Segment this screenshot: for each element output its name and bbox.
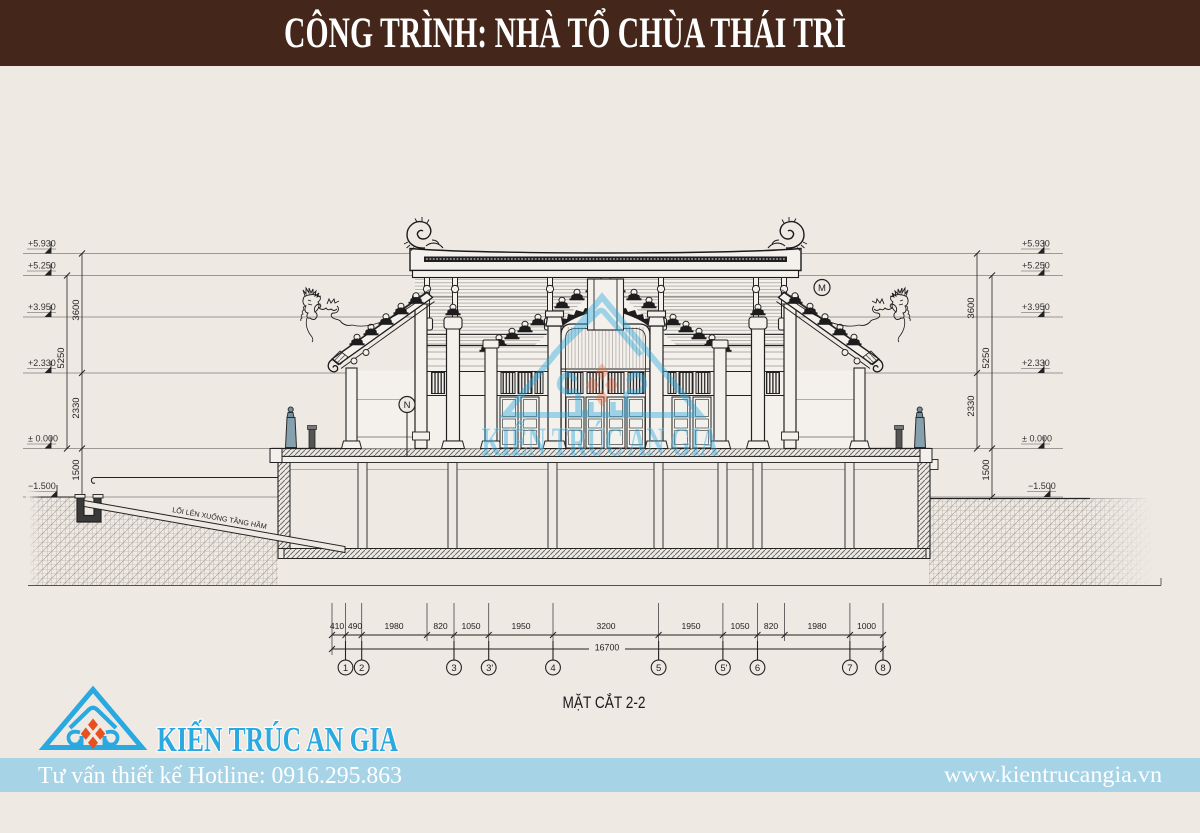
svg-text:5: 5 (656, 663, 661, 674)
svg-text:3': 3' (486, 663, 493, 674)
svg-text:1000: 1000 (857, 621, 876, 631)
svg-text:+3.950: +3.950 (1022, 302, 1050, 312)
svg-text:+2.330: +2.330 (28, 358, 56, 368)
svg-text:5250: 5250 (56, 347, 67, 368)
svg-text:+5.250: +5.250 (28, 261, 56, 271)
svg-text:820: 820 (433, 621, 448, 631)
svg-text:MẶT CẮT 2-2: MẶT CẮT 2-2 (563, 693, 646, 712)
svg-text:1980: 1980 (384, 621, 403, 631)
svg-text:3200: 3200 (596, 621, 615, 631)
svg-text:1950: 1950 (681, 621, 700, 631)
svg-text:1500: 1500 (981, 459, 992, 480)
svg-text:KIẾN TRÚC AN GIA: KIẾN TRÚC AN GIA (157, 719, 399, 759)
svg-text:16700: 16700 (595, 643, 620, 653)
svg-text:1: 1 (343, 663, 348, 674)
svg-text:1500: 1500 (71, 459, 82, 480)
svg-text:1980: 1980 (807, 621, 826, 631)
svg-text:−1.500: −1.500 (28, 481, 56, 491)
svg-text:3600: 3600 (71, 299, 82, 320)
svg-text:7: 7 (847, 663, 852, 674)
svg-text:2: 2 (359, 663, 364, 674)
svg-text:+2.330: +2.330 (1022, 358, 1050, 368)
svg-text:490: 490 (348, 621, 363, 631)
svg-text:± 0.000: ± 0.000 (1022, 434, 1052, 444)
svg-text:1950: 1950 (511, 621, 530, 631)
svg-text:+5.930: +5.930 (1022, 239, 1050, 249)
svg-text:5': 5' (720, 663, 727, 674)
svg-text:5250: 5250 (981, 347, 992, 368)
svg-text:N: N (404, 400, 411, 411)
svg-text:1050: 1050 (461, 621, 480, 631)
svg-text:2330: 2330 (71, 397, 82, 418)
svg-text:6: 6 (755, 663, 760, 674)
svg-text:820: 820 (764, 621, 779, 631)
svg-text:± 0.000: ± 0.000 (28, 434, 58, 444)
svg-text:M: M (818, 283, 826, 294)
svg-text:www.kientrucangia.vn: www.kientrucangia.vn (944, 762, 1163, 787)
svg-text:KIẾN TRÚC AN GIA: KIẾN TRÚC AN GIA (482, 419, 719, 464)
svg-text:CÔNG TRÌNH: NHÀ TỔ CHÙA THÁI T: CÔNG TRÌNH: NHÀ TỔ CHÙA THÁI TRÌ (284, 8, 846, 57)
svg-text:2330: 2330 (966, 395, 977, 416)
svg-text:1050: 1050 (730, 621, 749, 631)
svg-text:−1.500: −1.500 (1028, 481, 1056, 491)
svg-text:410: 410 (330, 621, 345, 631)
svg-text:3: 3 (451, 663, 456, 674)
svg-text:+5.250: +5.250 (1022, 261, 1050, 271)
svg-text:Tư vấn thiết kế Hotline: 0916.: Tư vấn thiết kế Hotline: 0916.295.863 (38, 762, 402, 789)
svg-text:+5.930: +5.930 (28, 239, 56, 249)
svg-text:+3.950: +3.950 (28, 302, 56, 312)
svg-text:3600: 3600 (966, 297, 977, 318)
svg-text:4: 4 (550, 663, 555, 674)
svg-text:8: 8 (880, 663, 885, 674)
